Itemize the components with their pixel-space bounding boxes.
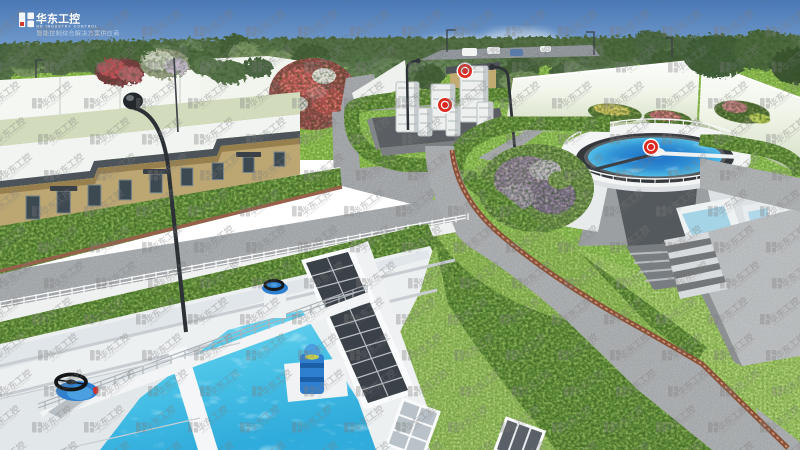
svg-text:HD INDUSTRY CONTROL: HD INDUSTRY CONTROL (37, 25, 98, 29)
svg-text:华东工控: 华东工控 (36, 12, 80, 26)
svg-text:智能控制综合解决方案供应商: 智能控制综合解决方案供应商 (37, 30, 120, 38)
